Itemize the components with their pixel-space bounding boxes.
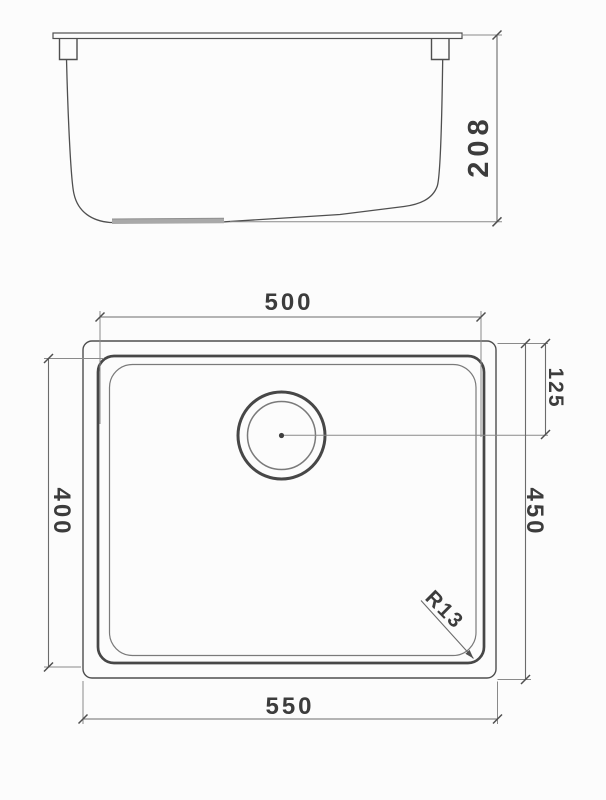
sink-body-profile [67, 59, 443, 223]
dim-bowl-width: 500 [96, 289, 486, 437]
dim-label-height: 208 [463, 114, 495, 177]
side-view-elevation: 208 [53, 31, 502, 227]
dim-label-overall-depth: 450 [521, 487, 548, 536]
technical-drawing: 208 [0, 0, 606, 800]
dim-label-bowl-depth: 400 [48, 487, 75, 536]
drawing-svg: 208 [0, 0, 606, 800]
dim-label-drain-offset: 125 [544, 367, 567, 408]
drain-recess-edge [112, 218, 224, 219]
dim-drain-offset: 125 [498, 339, 568, 439]
mounting-clip-left [60, 39, 78, 60]
drain-center-dot [279, 433, 284, 438]
dim-side-height: 208 [230, 31, 502, 227]
dim-label-bowl-width: 500 [264, 289, 313, 316]
drain [238, 392, 548, 479]
dim-overall-depth: 450 [498, 339, 549, 684]
plan-view: 500 400 125 [44, 289, 567, 724]
dim-corner-radius: R13 [421, 586, 474, 658]
dim-bowl-depth: 400 [44, 354, 104, 672]
bowl-inner-edge [110, 365, 477, 656]
dim-overall-width: 550 [79, 681, 503, 724]
bowl-rim [98, 356, 484, 663]
drain-recess-strip [112, 221, 224, 222]
mounting-clip-right [432, 39, 450, 60]
sink-rim-flange [53, 33, 462, 39]
dim-label-overall-width: 550 [265, 693, 314, 720]
